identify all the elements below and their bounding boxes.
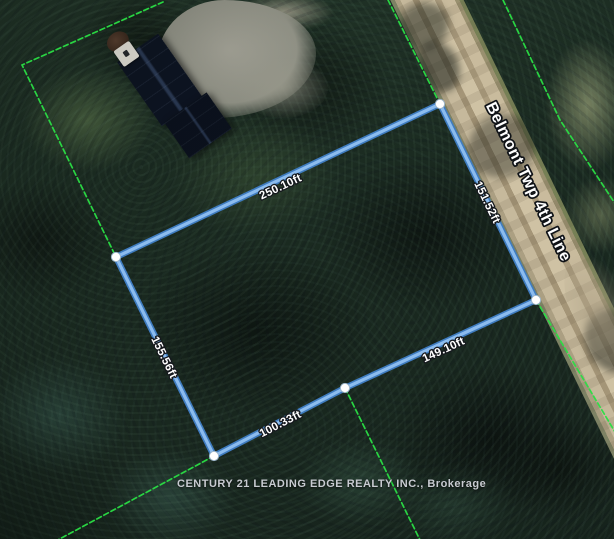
lot-corner-marker xyxy=(111,252,120,261)
adjacent-boundary-line-south xyxy=(345,388,421,539)
brokerage-attribution: CENTURY 21 LEADING EDGE REALTY INC., Bro… xyxy=(177,478,486,490)
map-canvas[interactable]: 250.10ft 151.52ft 149.10ft 100.33ft 155.… xyxy=(0,0,614,539)
lot-boundary-inner-stroke xyxy=(116,104,536,456)
dimension-label-east: 151.52ft xyxy=(471,180,502,226)
lot-corner-marker xyxy=(531,295,540,304)
adjacent-boundary-lines xyxy=(22,0,614,539)
adjacent-boundary-line-northwest xyxy=(22,2,163,257)
lot-corner-marker xyxy=(209,451,218,460)
adjacent-boundary-line-southeast xyxy=(536,300,614,437)
dimension-label-west: 155.56ft xyxy=(148,335,179,381)
lot-boundary-outline xyxy=(116,104,536,456)
lot-corner-marker xyxy=(435,99,444,108)
lot-corner-marker xyxy=(340,383,349,392)
parcel-overlay: 250.10ft 151.52ft 149.10ft 100.33ft 155.… xyxy=(0,0,614,539)
adjacent-boundary-line-southwest xyxy=(54,456,214,539)
dimension-label-south: 100.33ft xyxy=(258,409,304,440)
road-name-label: Belmont Twp 4th Line xyxy=(482,100,574,265)
lot-corner-markers xyxy=(111,99,540,460)
adjacent-boundary-line-north xyxy=(388,0,440,104)
